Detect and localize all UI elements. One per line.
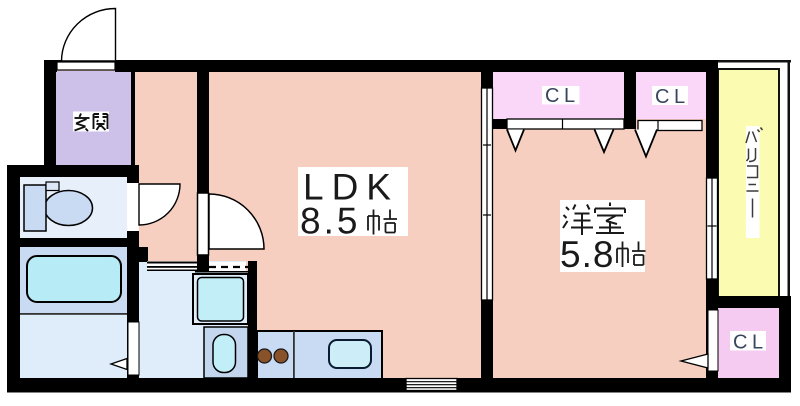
svg-text:CL: CL xyxy=(733,332,768,354)
svg-text:8.5: 8.5 xyxy=(300,201,360,242)
svg-text:CL: CL xyxy=(545,85,580,107)
svg-text:5.8: 5.8 xyxy=(560,234,614,275)
svg-text:CL: CL xyxy=(655,86,690,108)
